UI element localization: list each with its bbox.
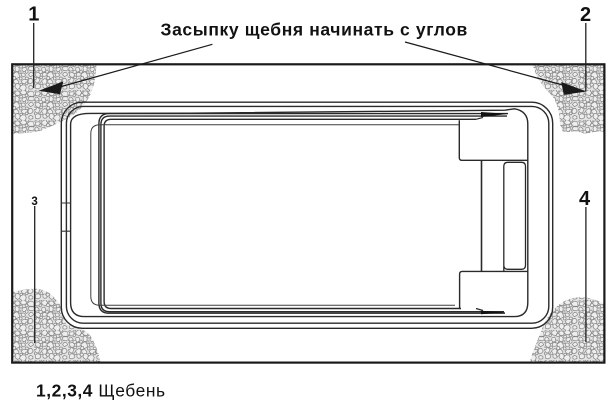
svg-text:2: 2 <box>580 4 591 26</box>
svg-text:3: 3 <box>31 196 37 208</box>
svg-text:4: 4 <box>579 188 591 210</box>
svg-text:1,2,3,4 Щебень: 1,2,3,4 Щебень <box>36 381 166 401</box>
svg-text:1: 1 <box>28 4 39 26</box>
svg-text:Засыпку щебня начинать с углов: Засыпку щебня начинать с углов <box>161 20 468 40</box>
